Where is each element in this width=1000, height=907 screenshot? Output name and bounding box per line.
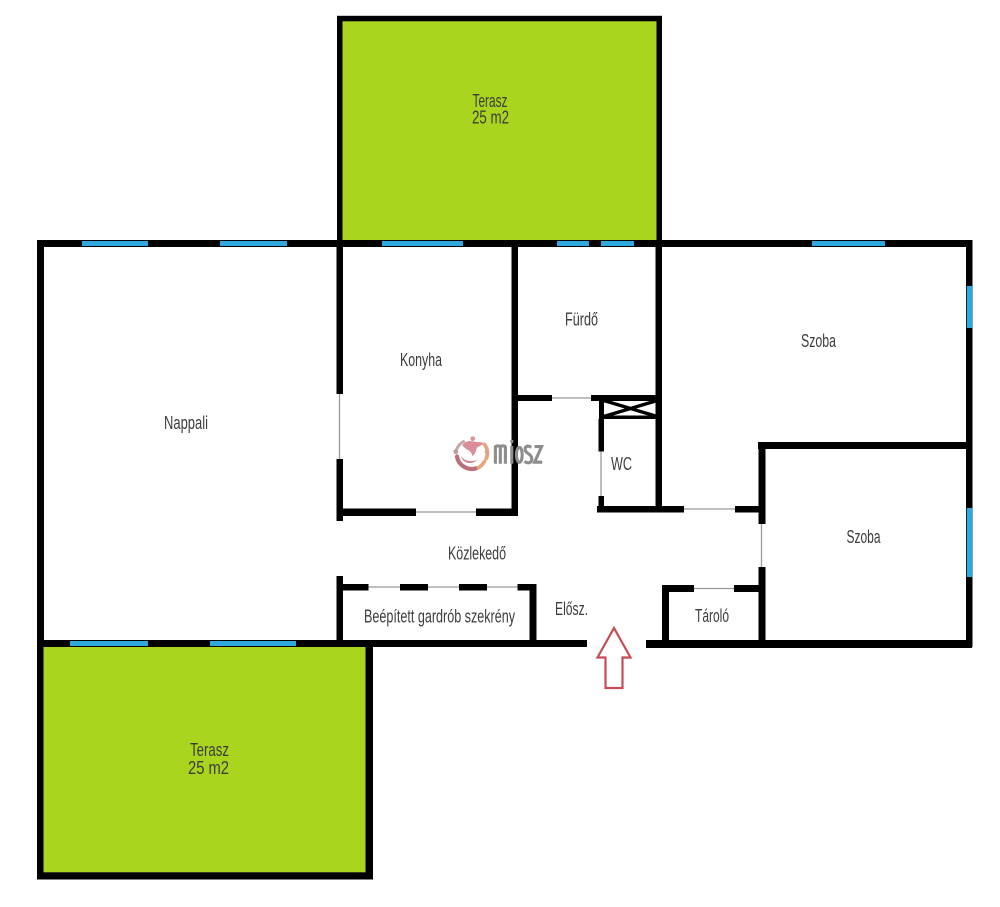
svg-text:Tároló: Tároló (695, 606, 729, 626)
svg-text:WC: WC (611, 454, 632, 474)
svg-text:Szoba: Szoba (847, 527, 882, 547)
svg-text:Konyha: Konyha (400, 350, 443, 370)
svg-text:25 m2: 25 m2 (188, 758, 229, 778)
svg-text:25 m2: 25 m2 (472, 108, 509, 128)
svg-text:Közlekedő: Közlekedő (448, 544, 506, 564)
svg-text:Szoba: Szoba (801, 331, 837, 351)
svg-text:Beépített gardrób szekrény: Beépített gardrób szekrény (364, 607, 515, 627)
svg-text:Fürdő: Fürdő (565, 310, 598, 330)
svg-text:Nappali: Nappali (164, 413, 208, 433)
svg-text:Elősz.: Elősz. (555, 599, 588, 619)
